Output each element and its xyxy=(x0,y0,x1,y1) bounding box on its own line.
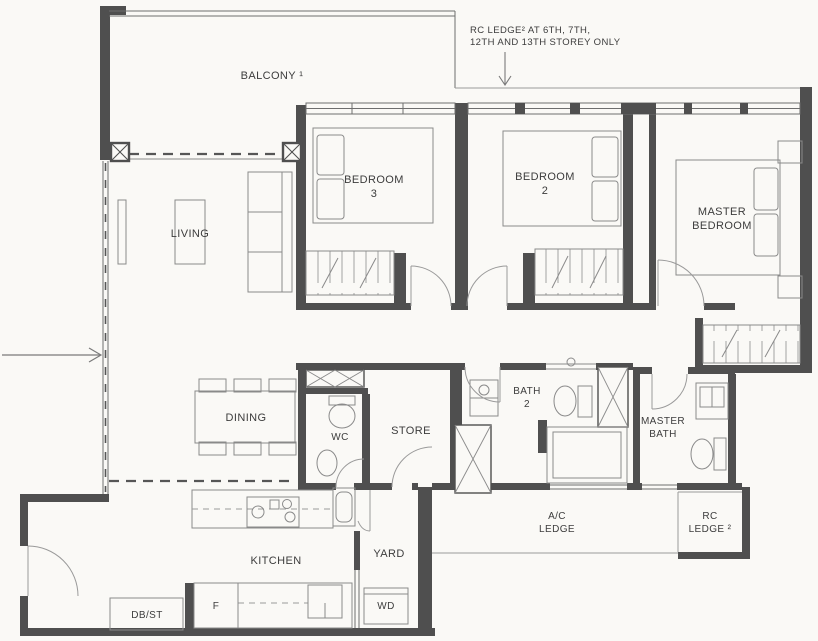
store-label: STORE xyxy=(391,425,431,437)
dining-label: DINING xyxy=(226,412,267,424)
structural-columns xyxy=(111,143,301,161)
db-st-label: DB/ST xyxy=(131,610,162,621)
entrance-door xyxy=(28,546,78,596)
ac-ledge-label-line2: LEDGE xyxy=(539,524,575,535)
bath2-label-line2: 2 xyxy=(524,399,530,410)
entry-arrow xyxy=(2,348,101,362)
master-bedroom-label-line2: BEDROOM xyxy=(692,220,752,232)
bedroom3-label-line2: 3 xyxy=(371,188,378,200)
kitchen-label: KITCHEN xyxy=(250,555,301,567)
bath2-toilet xyxy=(554,386,592,417)
column-right xyxy=(283,143,301,161)
master-bath-toilet xyxy=(691,438,726,470)
yard-door xyxy=(358,490,370,531)
sofa xyxy=(248,172,292,292)
annotation-arrow xyxy=(499,52,511,85)
bath2-label-line1: BATH xyxy=(513,386,541,397)
balcony-label: BALCONY ¹ xyxy=(241,70,304,82)
bedroom3-door xyxy=(411,266,451,306)
wardrobe-master xyxy=(703,325,800,363)
annotation-text-line2: 12TH AND 13TH STOREY ONLY xyxy=(470,37,621,48)
washer-dryer-label: WD xyxy=(377,601,394,612)
kitchen-counter-bottom xyxy=(238,583,352,628)
bedroom3-label-line1: BEDROOM xyxy=(344,174,404,186)
master-bedroom-door xyxy=(658,260,704,306)
wardrobe-bedroom2 xyxy=(535,249,623,295)
bath2-shower-tub xyxy=(547,427,627,483)
bedroom2-door xyxy=(467,266,507,306)
bedroom2-label-line2: 2 xyxy=(542,185,549,197)
shaft-between-baths xyxy=(598,367,628,427)
fridge-label: F xyxy=(213,601,220,612)
master-bath-vanity xyxy=(696,383,728,419)
kitchen-counter-top xyxy=(192,490,333,528)
column-left xyxy=(111,143,129,161)
ac-ledge-label-line1: A/C xyxy=(548,511,566,522)
master-bedroom-label-line1: MASTER xyxy=(698,206,746,218)
master-bath-door xyxy=(652,374,687,409)
dashed-boundaries xyxy=(106,154,297,492)
store-door xyxy=(392,447,432,487)
wc-door xyxy=(336,459,364,487)
tv-console xyxy=(118,200,126,264)
shaft-above-wc xyxy=(306,370,364,387)
rc-ledge-label-line1: RC xyxy=(702,511,717,522)
annotation-text-line1: RC LEDGE² AT 6TH, 7TH, xyxy=(470,25,590,36)
wardrobe-bedroom3 xyxy=(306,251,394,295)
bath2-shower-screen xyxy=(546,358,596,369)
floor-plan-drawing: RC LEDGE² AT 6TH, 7TH, 12TH AND 13TH STO… xyxy=(0,0,818,641)
master-bath-label-line2: BATH xyxy=(649,429,677,440)
wc-label: WC xyxy=(331,432,348,443)
yard-label: YARD xyxy=(373,548,404,560)
bedroom2-label-line1: BEDROOM xyxy=(515,171,575,183)
master-bath-label-line1: MASTER xyxy=(641,416,685,427)
shaft-near-bath2 xyxy=(455,425,491,493)
floor-plan-page: RC LEDGE² AT 6TH, 7TH, 12TH AND 13TH STO… xyxy=(0,0,818,641)
living-label: LIVING xyxy=(171,228,209,240)
wc-basin xyxy=(317,450,337,476)
rc-ledge-label-line2: LEDGE ² xyxy=(689,524,732,535)
wc-toilet xyxy=(329,396,355,428)
outer-walls xyxy=(20,6,812,636)
kitchen-sink xyxy=(333,488,355,526)
